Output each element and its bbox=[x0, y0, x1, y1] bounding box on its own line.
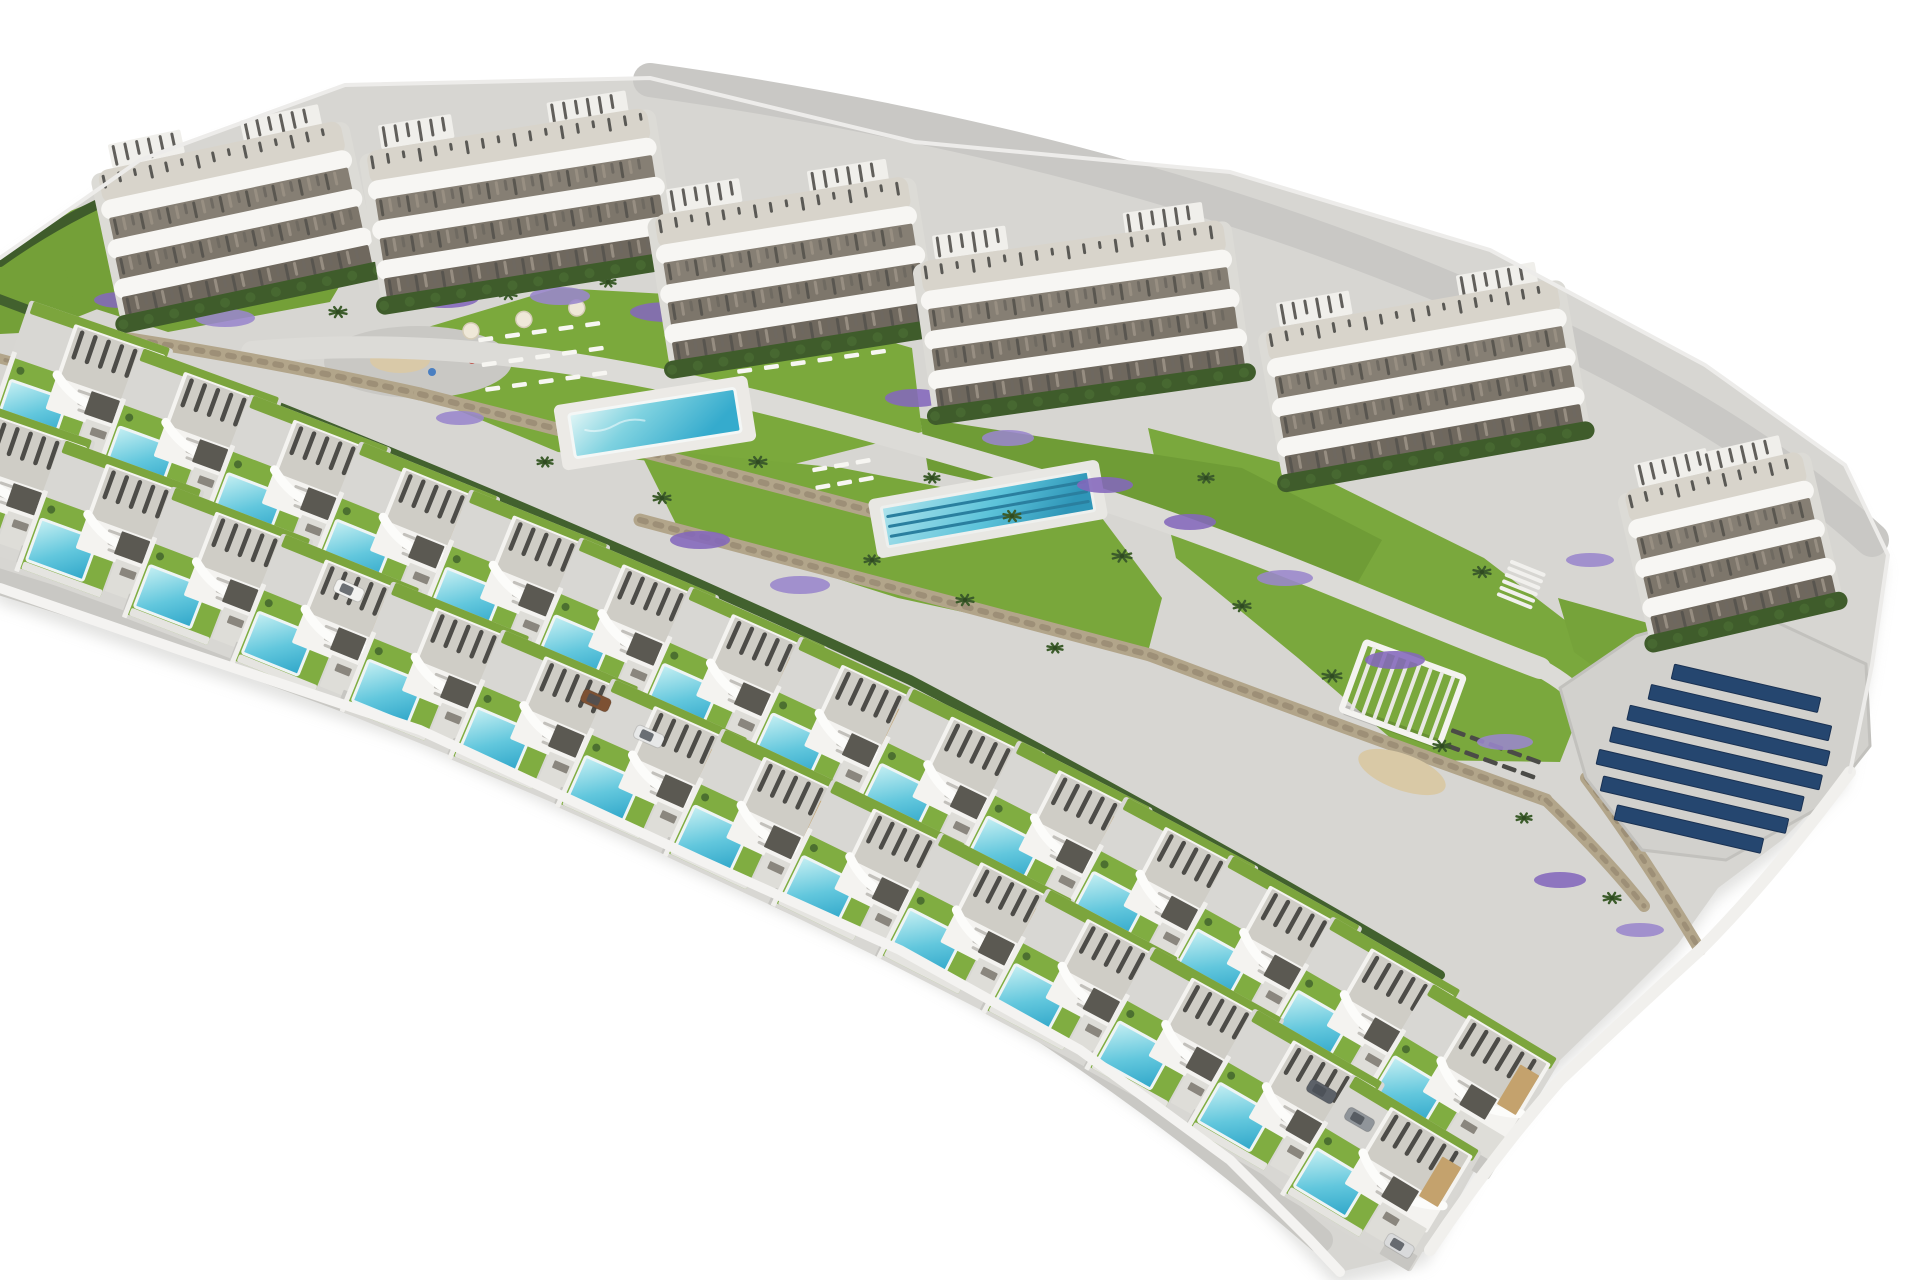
development-aerial-view bbox=[0, 0, 1920, 1280]
screenshot-root bbox=[0, 0, 1920, 1280]
